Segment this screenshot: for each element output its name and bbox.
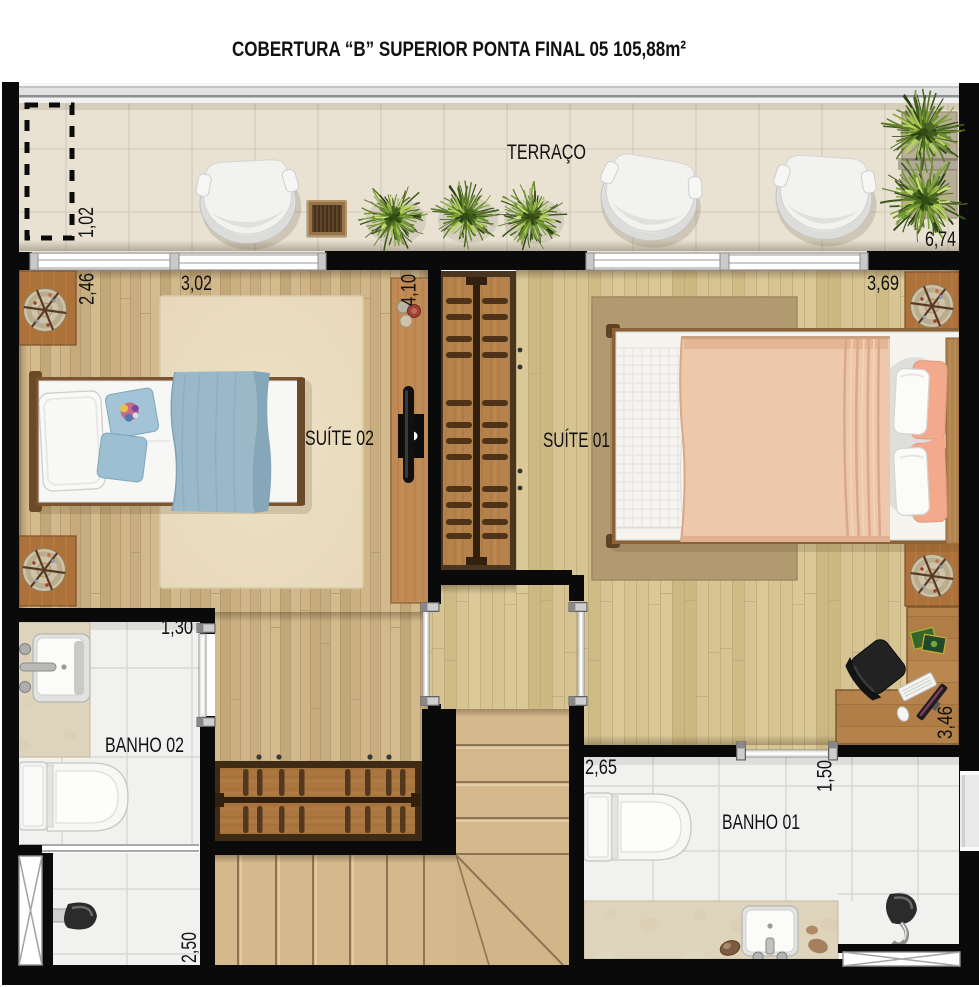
svg-text:1,30: 1,30 bbox=[161, 616, 193, 639]
svg-text:BANHO 02: BANHO 02 bbox=[105, 734, 184, 757]
svg-text:1,50: 1,50 bbox=[814, 760, 837, 792]
svg-text:SUÍTE 01: SUÍTE 01 bbox=[543, 429, 610, 452]
svg-text:3,02: 3,02 bbox=[181, 272, 212, 295]
svg-text:BANHO 01: BANHO 01 bbox=[722, 811, 800, 834]
svg-text:2,50: 2,50 bbox=[178, 932, 201, 963]
svg-text:COBERTURA “B” SUPERIOR PONTA: COBERTURA “B” SUPERIOR PONTA FINAL 05 10… bbox=[232, 37, 686, 61]
svg-text:2,65: 2,65 bbox=[585, 756, 617, 779]
svg-text:3,69: 3,69 bbox=[867, 272, 899, 295]
svg-text:3,46: 3,46 bbox=[934, 706, 957, 739]
svg-text:4,10: 4,10 bbox=[398, 274, 421, 306]
svg-text:TERRAÇO: TERRAÇO bbox=[507, 141, 586, 164]
svg-text:SUÍTE 02: SUÍTE 02 bbox=[305, 427, 374, 450]
svg-text:1,02: 1,02 bbox=[75, 207, 98, 238]
svg-text:2,46: 2,46 bbox=[76, 273, 99, 305]
svg-text:6,74: 6,74 bbox=[925, 228, 956, 251]
